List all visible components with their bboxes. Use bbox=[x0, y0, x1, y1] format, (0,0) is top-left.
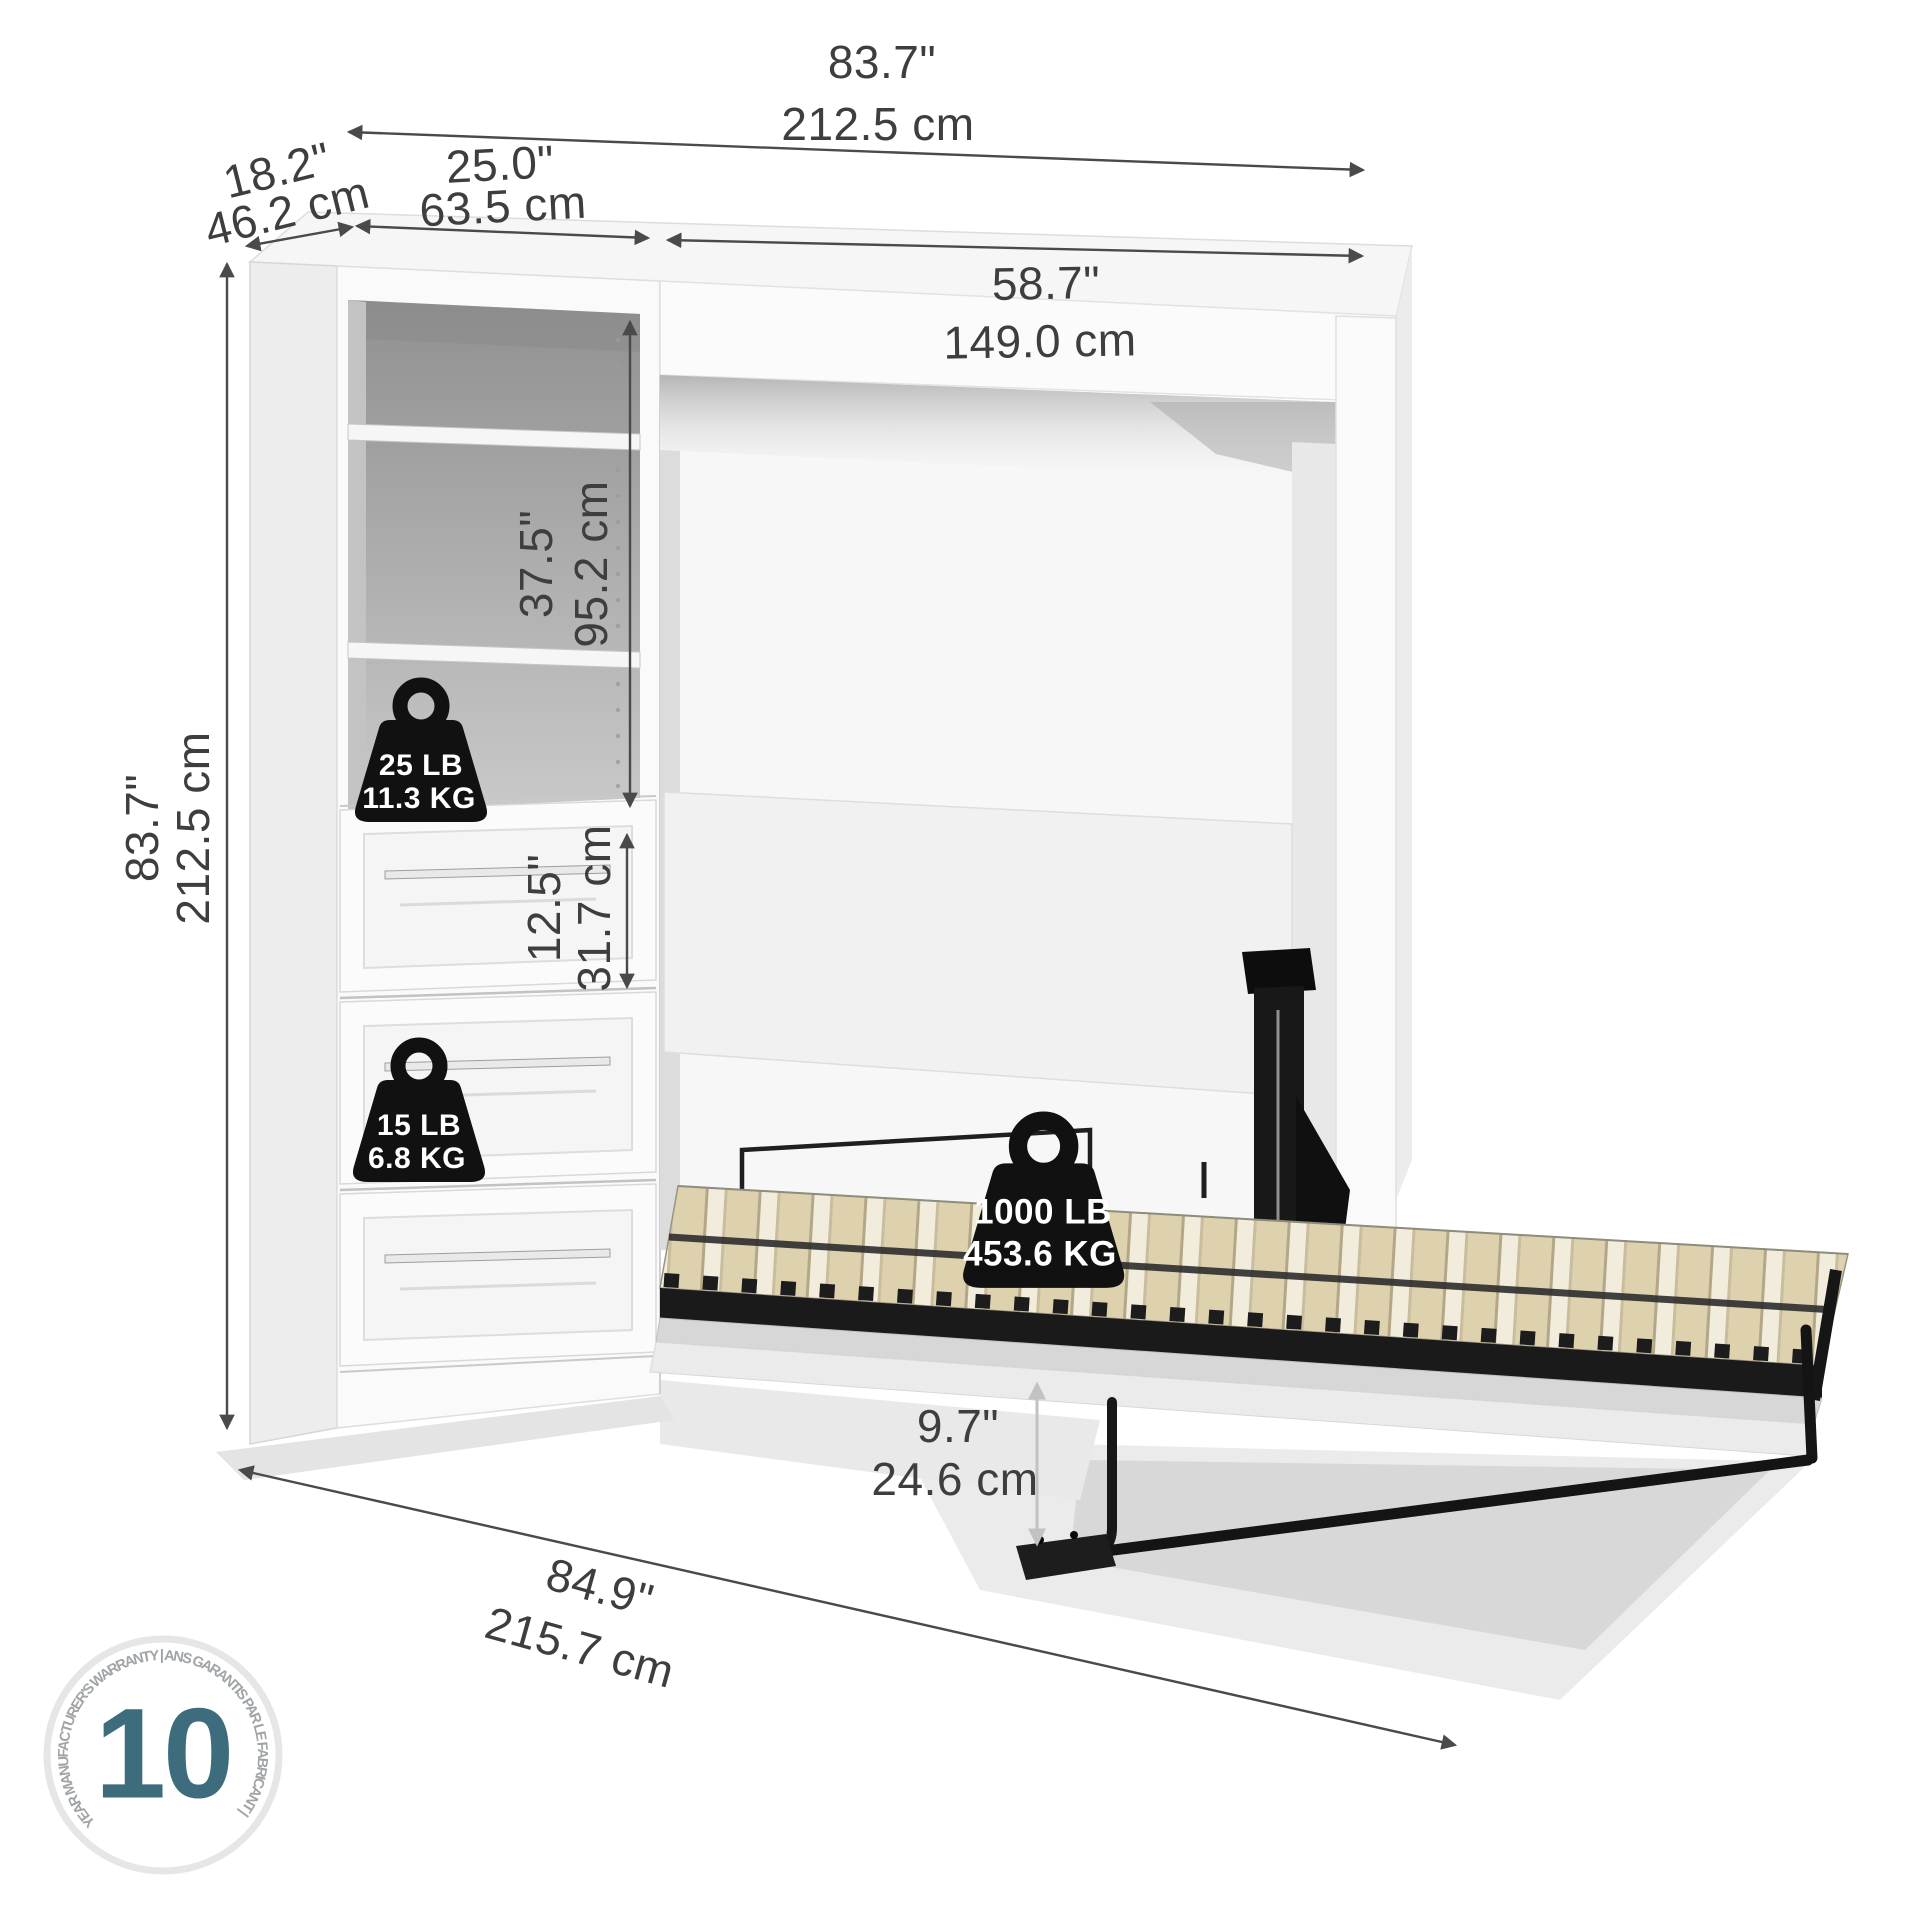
shelf-height-cm: 95.2 cm bbox=[568, 480, 614, 647]
shelf-capacity-lb: 25 LB bbox=[379, 751, 463, 781]
drawer-3 bbox=[340, 1184, 656, 1366]
cabinet-left-side bbox=[250, 262, 337, 1444]
total-height-cm: 212.5 cm bbox=[170, 731, 216, 924]
shelf-capacity-kg: 11.3 KG bbox=[362, 784, 476, 814]
total-width-inches: 83.7" bbox=[828, 39, 936, 85]
clearance-cm: 24.6 cm bbox=[871, 1456, 1038, 1502]
clearance-inches: 9.7" bbox=[917, 1403, 999, 1449]
drawer-height-cm: 31.7 cm bbox=[571, 824, 617, 991]
bracket-bolt bbox=[1070, 1531, 1078, 1539]
drawer-height-inches: 12.5" bbox=[521, 854, 567, 962]
shelf-height-inches: 37.5" bbox=[513, 510, 559, 618]
drawer-capacity-lb: 15 LB bbox=[377, 1111, 461, 1141]
shelving-width-cm: 63.5 cm bbox=[418, 179, 587, 234]
far-leg bbox=[1806, 1330, 1812, 1458]
furniture-illustration: YEAR MANUFACTURER'S WARRANTY | ANS GARAN… bbox=[0, 0, 1920, 1920]
product-dimension-diagram: YEAR MANUFACTURER'S WARRANTY | ANS GARAN… bbox=[0, 0, 1920, 1920]
total-width-cm: 212.5 cm bbox=[781, 101, 974, 147]
drawer-capacity-kg: 6.8 KG bbox=[368, 1144, 466, 1174]
bed-width-inches: 58.7" bbox=[991, 259, 1100, 307]
right-stile bbox=[1336, 316, 1396, 1250]
warranty-years: 10 bbox=[95, 1690, 231, 1818]
bed-capacity-lb: 1000 LB bbox=[974, 1195, 1112, 1230]
interior-left-wall bbox=[348, 300, 366, 812]
total-height-inches: 83.7" bbox=[119, 774, 165, 882]
cabinet-right-side bbox=[1396, 246, 1412, 1200]
headboard-panel bbox=[664, 792, 1292, 1096]
bed-width-cm: 149.0 cm bbox=[943, 316, 1137, 365]
bed-capacity-kg: 453.6 KG bbox=[963, 1237, 1117, 1272]
